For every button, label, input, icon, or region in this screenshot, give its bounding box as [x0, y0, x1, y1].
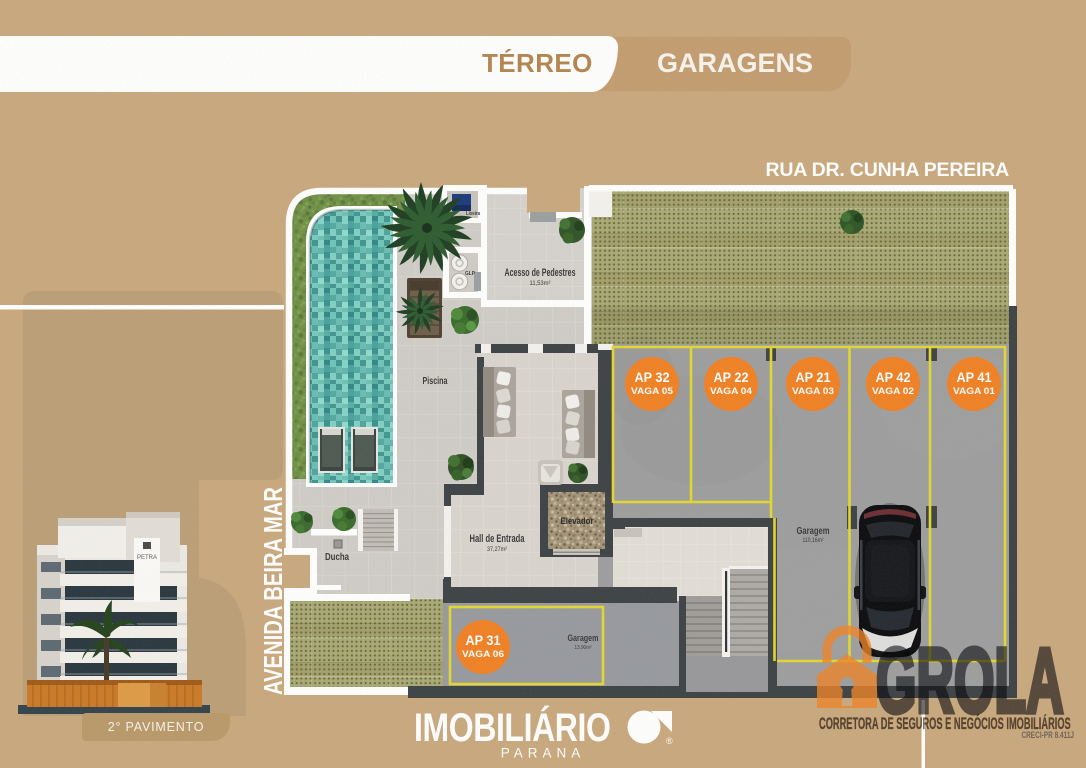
- svg-text:13,90m²: 13,90m²: [575, 645, 592, 651]
- svg-text:AP 42: AP 42: [876, 370, 911, 385]
- svg-text:Garagem: Garagem: [797, 526, 830, 537]
- svg-text:®: ®: [666, 736, 673, 746]
- svg-text:Piscina: Piscina: [423, 376, 448, 387]
- svg-text:VAGA 04: VAGA 04: [710, 386, 752, 396]
- svg-text:IMOBILIÁRIO: IMOBILIÁRIO: [414, 705, 610, 750]
- svg-text:Garagem: Garagem: [568, 633, 599, 644]
- svg-text:AP 32: AP 32: [635, 370, 670, 385]
- svg-text:VAGA 06: VAGA 06: [462, 649, 504, 659]
- svg-text:AP 22: AP 22: [714, 370, 749, 385]
- svg-text:GLP: GLP: [465, 271, 475, 277]
- svg-text:11,53m²: 11,53m²: [530, 280, 552, 287]
- svg-text:PARANA: PARANA: [501, 746, 586, 761]
- svg-text:PETRA: PETRA: [137, 555, 157, 561]
- svg-text:Lixeira: Lixeira: [466, 211, 481, 217]
- svg-text:VAGA 03: VAGA 03: [792, 386, 834, 396]
- svg-text:110,16m²: 110,16m²: [803, 538, 824, 544]
- svg-text:VAGA 02: VAGA 02: [872, 386, 914, 396]
- svg-text:VAGA 05: VAGA 05: [631, 386, 673, 396]
- svg-text:Hall de Entrada: Hall de Entrada: [470, 533, 526, 545]
- svg-text:AP 31: AP 31: [466, 633, 501, 648]
- svg-text:VAGA 01: VAGA 01: [953, 386, 995, 396]
- svg-text:AVENIDA BEIRA MAR: AVENIDA BEIRA MAR: [258, 487, 288, 695]
- svg-text:37,27m²: 37,27m²: [487, 546, 508, 553]
- svg-text:AP 21: AP 21: [796, 370, 831, 385]
- svg-text:Elevador: Elevador: [561, 516, 594, 527]
- svg-text:Ducha: Ducha: [325, 552, 349, 563]
- svg-text:AP 41: AP 41: [957, 370, 992, 385]
- svg-text:Acesso de Pedestres: Acesso de Pedestres: [505, 267, 576, 279]
